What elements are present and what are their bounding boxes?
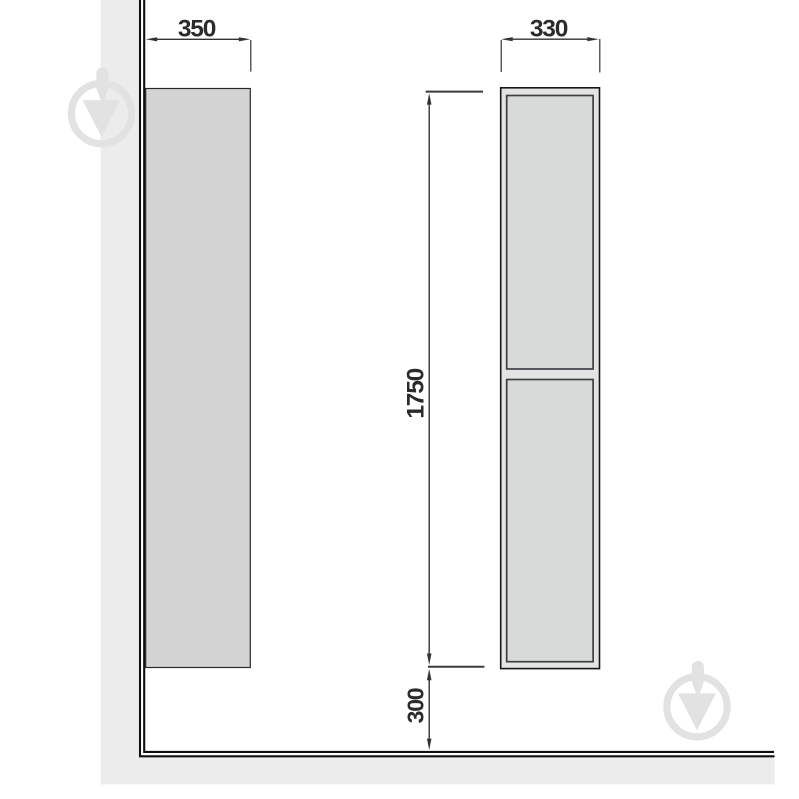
svg-text:330: 330	[530, 16, 568, 43]
svg-text:300: 300	[402, 688, 428, 723]
svg-text:350: 350	[178, 16, 216, 43]
svg-text:1750: 1750	[403, 368, 430, 418]
